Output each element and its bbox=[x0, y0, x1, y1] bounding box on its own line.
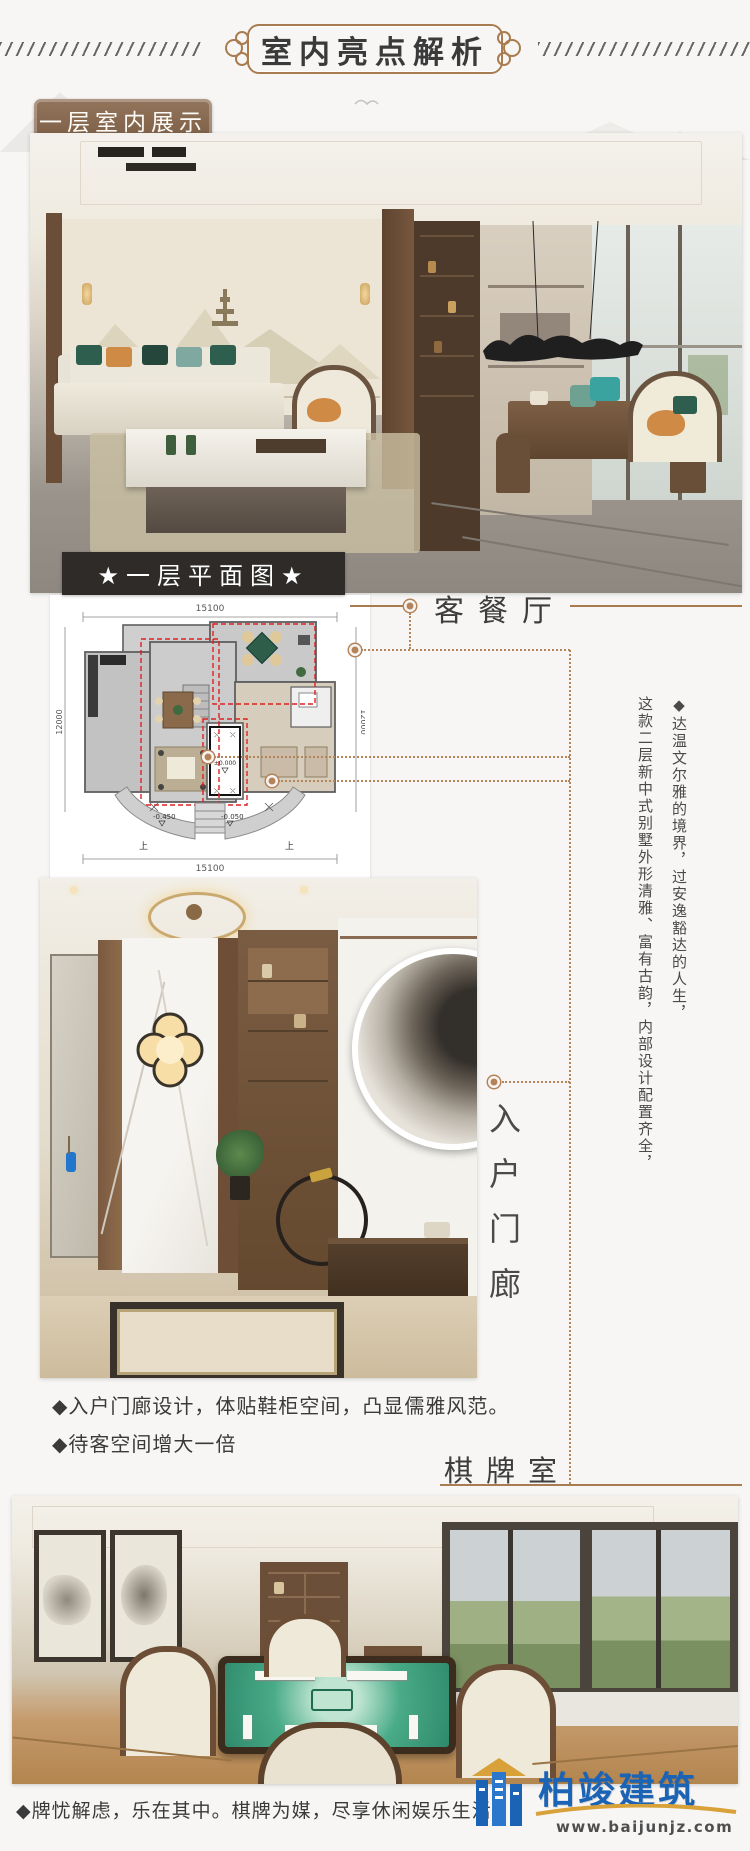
ink-painting bbox=[34, 1530, 106, 1662]
bullet-entry-2: ◆待客空间增大一倍 bbox=[52, 1428, 236, 1457]
entry-hall-label: 入户门廊 bbox=[480, 1102, 526, 1322]
connector-line bbox=[350, 605, 406, 607]
connector-dotted bbox=[502, 1081, 570, 1083]
title-frame: 室内亮点解析 bbox=[247, 24, 503, 74]
entry-hall-photo bbox=[40, 878, 477, 1378]
armchair bbox=[628, 371, 722, 462]
section-label-text: 一层室内展示 bbox=[39, 103, 207, 137]
dim-bottom: 15100 bbox=[196, 864, 225, 874]
pillow bbox=[142, 345, 168, 365]
scroll-ornament-icon bbox=[494, 28, 524, 68]
vertical-text-col1: ◆达温文尔雅的境界，过安逸豁达的人生， bbox=[664, 696, 694, 1022]
wall-sconce bbox=[360, 283, 370, 305]
display-cabinet bbox=[414, 221, 480, 551]
connector-dot bbox=[404, 600, 416, 612]
connector-dot bbox=[202, 751, 214, 763]
pillow bbox=[106, 347, 132, 367]
svg-text:⤬: ⤬ bbox=[230, 787, 236, 795]
connector-dotted bbox=[214, 756, 570, 758]
connector-line bbox=[440, 1484, 742, 1486]
scroll-ornament-icon bbox=[222, 28, 252, 68]
up-label-right: 上 bbox=[285, 841, 294, 852]
connector-dotted bbox=[569, 650, 571, 1484]
connector-dot bbox=[488, 1076, 500, 1088]
floor-rug bbox=[110, 1302, 344, 1378]
dim-top: 15100 bbox=[196, 604, 225, 614]
bullet-entry-1: ◆入户门廊设计，体贴鞋柜空间，凸显儒雅风范。 bbox=[52, 1390, 509, 1419]
pillow bbox=[76, 345, 102, 365]
logo-swoosh bbox=[534, 1804, 738, 1818]
ink-painting bbox=[110, 1530, 182, 1662]
hatch-left bbox=[0, 42, 202, 56]
svg-text:⤬: ⤬ bbox=[230, 731, 236, 739]
living-dining-photo bbox=[30, 133, 742, 593]
connector-dotted bbox=[409, 613, 411, 649]
vertical-text-col2: 这款二层新中式别墅外形清雅、富有古韵，内部设计配置齐全， bbox=[630, 696, 660, 1172]
pillow bbox=[210, 345, 236, 365]
level-minus050: -0.050 bbox=[221, 813, 244, 821]
dim-right: 12000 bbox=[359, 709, 365, 734]
hatch-right bbox=[538, 42, 750, 56]
clover-lamp bbox=[130, 1008, 210, 1098]
bullet-chess-1: ◆牌忧解虑，乐在其中。棋牌为媒，尽享休闲娱乐生活。 bbox=[16, 1796, 512, 1823]
chair bbox=[120, 1646, 216, 1756]
building-logo-icon bbox=[468, 1758, 530, 1830]
wall-sconce bbox=[82, 283, 92, 305]
floorplan-image: 15100 12000 12000 15100 bbox=[50, 595, 370, 880]
coffee-table bbox=[126, 429, 366, 487]
promo-page: 室内亮点解析 一层室内展示 bbox=[0, 0, 750, 1851]
connector-dot bbox=[266, 775, 278, 787]
connector-dotted bbox=[278, 780, 570, 782]
connector-dot bbox=[349, 644, 361, 656]
floorplan-label: ★一层平面图★ bbox=[62, 552, 345, 595]
dim-left: 12000 bbox=[55, 709, 64, 734]
brand-logo: 柏竣建筑 www.baijunjz.com bbox=[468, 1752, 742, 1846]
pendant-light bbox=[478, 221, 648, 401]
level-minus450: -0.450 bbox=[153, 813, 176, 821]
up-label-left: 上 bbox=[139, 841, 148, 852]
level-zero: ±0.000 bbox=[214, 760, 236, 767]
chess-room-photo bbox=[12, 1496, 738, 1784]
living-dining-label: 客餐厅 bbox=[434, 586, 566, 630]
plant bbox=[208, 1130, 272, 1204]
blue-vase bbox=[66, 1152, 76, 1172]
brand-url: www.baijunjz.com bbox=[556, 1818, 733, 1836]
chair bbox=[264, 1614, 346, 1677]
connector-line bbox=[570, 605, 742, 607]
connector-dotted bbox=[361, 649, 570, 651]
pillow bbox=[176, 347, 202, 367]
page-title: 室内亮点解析 bbox=[261, 27, 489, 72]
